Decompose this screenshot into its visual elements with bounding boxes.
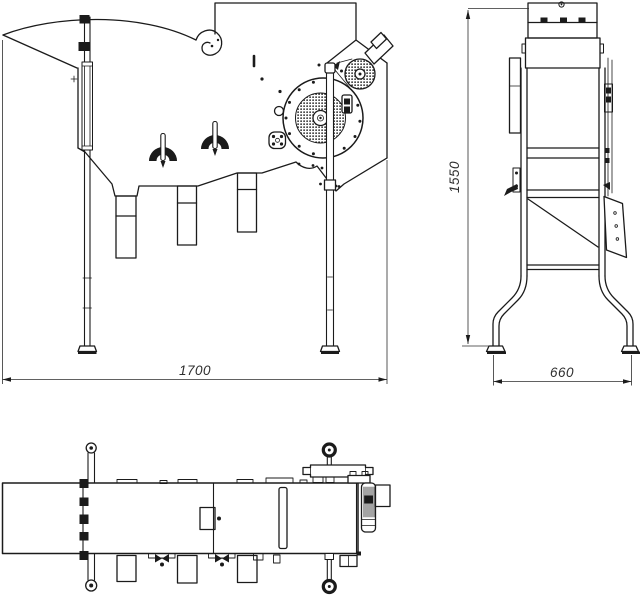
clover-knob [269,132,286,149]
cross-post [80,443,97,591]
clamp-lever-2 [201,122,229,157]
length-dimension-label: 1700 [179,363,211,378]
feed-hopper [3,19,222,148]
support-post-left [78,15,97,354]
discharge-chute-2 [178,186,197,245]
depth-dimension-label: 660 [550,365,574,380]
clamp-knob-footprint-1 [149,554,176,567]
chute-footprints [117,556,257,584]
fan-housing [269,78,363,158]
angled-deflector-plate [604,197,627,258]
top-hopper-stack [522,2,604,68]
housing-hole [275,107,284,116]
left-side-panel [504,58,521,196]
discharge-chute-3 [238,173,257,232]
dimension-depth: 660 [494,355,632,386]
terminal-box [342,95,352,113]
machine-three-view-drawing: 1700 [0,0,640,596]
top-view [3,443,391,593]
center-access-box [200,508,221,530]
lower-adjuster-rod [323,554,335,593]
side-view: 1550 660 [447,2,640,386]
clamp-lever-1 [149,134,177,169]
front-view: 1700 [3,3,394,384]
clamp-knob-footprint-2 [209,554,236,567]
screen-slot [279,488,287,549]
deck-outline [3,483,359,554]
height-dimension-label: 1550 [447,161,462,193]
right-side-panel [603,58,627,258]
splayed-legs [487,276,640,354]
discharge-chute-1 [116,196,136,258]
technical-drawing-canvas: 1700 [0,0,640,596]
motor-top-view [340,472,390,567]
dimension-height: 1550 [447,9,529,347]
frame-columns [521,68,605,276]
